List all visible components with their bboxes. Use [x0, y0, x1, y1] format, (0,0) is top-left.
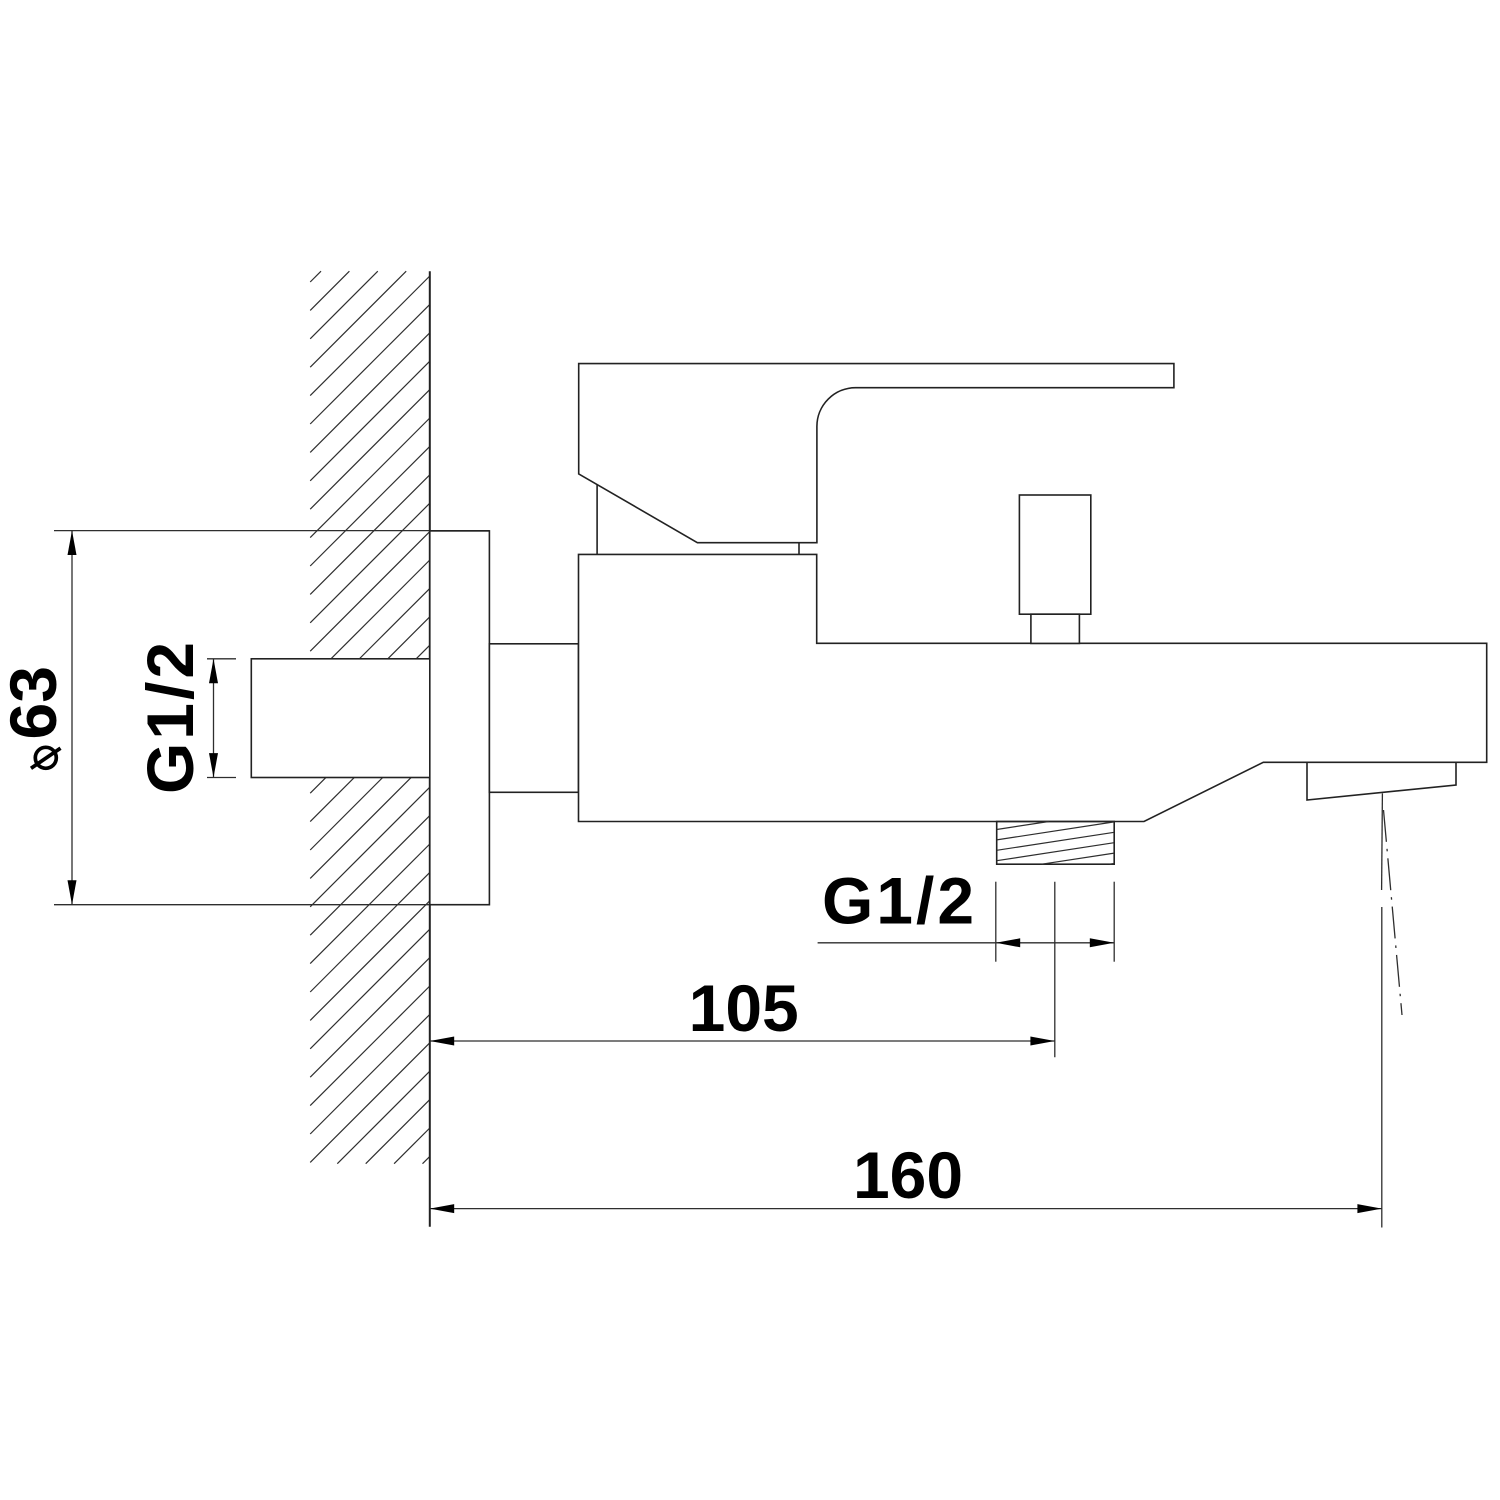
svg-text:G1/2: G1/2 [822, 864, 977, 938]
svg-text:63: 63 [0, 666, 70, 739]
svg-text:G1/2: G1/2 [133, 639, 207, 794]
svg-text:160: 160 [853, 1138, 963, 1212]
svg-text:105: 105 [689, 971, 799, 1045]
